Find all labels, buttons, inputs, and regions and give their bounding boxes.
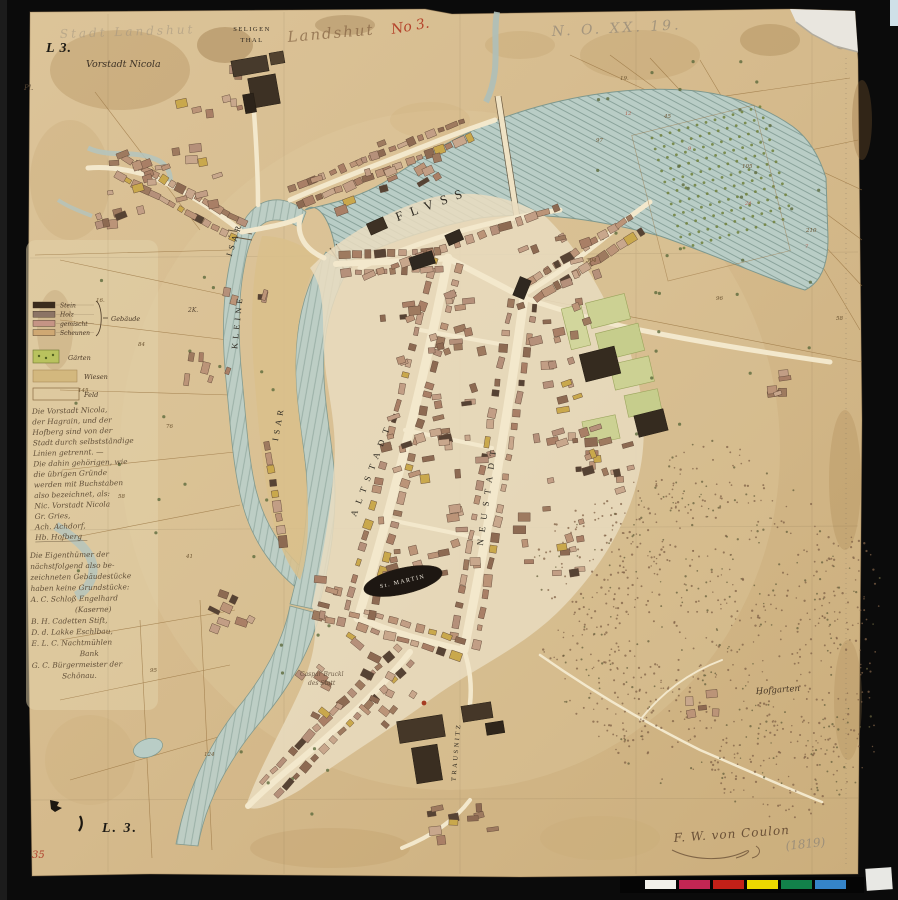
stipple-dot: [716, 644, 718, 646]
stipple-dot: [833, 642, 835, 644]
stipple-dot: [678, 688, 680, 690]
building: [447, 513, 460, 522]
orchard-tree: [672, 178, 675, 181]
orchard-tree: [711, 143, 714, 146]
stipple-dot: [681, 649, 683, 651]
stipple-dot: [623, 566, 625, 568]
stipple-dot: [822, 803, 824, 805]
stipple-dot: [831, 723, 833, 725]
stipple-dot: [747, 485, 749, 487]
stipple-dot: [692, 444, 694, 446]
stipple-dot: [605, 593, 607, 595]
stipple-dot: [626, 537, 628, 539]
stipple-dot: [849, 567, 851, 569]
stipple-dot: [872, 623, 874, 625]
orchard-tree: [699, 135, 702, 138]
building: [470, 557, 480, 565]
stipple-dot: [773, 757, 775, 759]
stipple-dot: [578, 608, 580, 610]
stipple-dot: [687, 611, 689, 613]
stipple-dot: [809, 688, 811, 690]
stipple-dot: [826, 749, 827, 750]
stipple-dot: [719, 757, 721, 759]
orchard-tree: [701, 241, 704, 244]
stipple-dot: [680, 605, 682, 607]
stipple-dot: [554, 596, 556, 598]
stipple-dot: [777, 526, 779, 528]
stipple-dot: [610, 663, 612, 665]
legend-row-label: Stein: [60, 303, 76, 310]
building: [511, 423, 518, 430]
orchard-tree: [709, 203, 712, 206]
stipple-dot: [626, 667, 628, 669]
stipple-dot: [798, 662, 800, 664]
stipple-dot: [587, 613, 589, 615]
stipple-dot: [827, 536, 829, 538]
orchard-tree: [730, 209, 733, 212]
stipple-dot: [846, 622, 848, 624]
stipple-dot: [781, 609, 783, 611]
stipple-dot: [679, 473, 680, 474]
building: [576, 467, 582, 472]
orchard-tree: [681, 175, 684, 178]
stipple-dot: [692, 676, 693, 677]
stipple-dot: [762, 484, 764, 486]
stipple-dot: [821, 605, 823, 607]
legend-swatch: [33, 311, 55, 317]
stipple-dot: [675, 507, 677, 509]
stipple-dot: [850, 729, 852, 731]
stipple-dot: [702, 446, 704, 448]
stipple-dot: [858, 733, 860, 735]
orchard-tree: [692, 244, 695, 247]
color-patch: [815, 880, 846, 889]
stipple-dot: [798, 623, 800, 625]
stipple-dot: [838, 794, 840, 796]
stipple-dot: [791, 725, 792, 726]
orchard-tree: [753, 155, 756, 158]
legend-swatch: [33, 302, 55, 308]
stipple-dot: [841, 789, 842, 790]
stipple-dot: [739, 449, 741, 451]
stipple-dot: [804, 685, 806, 687]
stipple-dot: [583, 606, 585, 608]
building: [518, 513, 530, 521]
stipple-dot: [643, 506, 645, 508]
stipple-dot: [847, 733, 849, 735]
stipple-dot: [727, 669, 729, 671]
stipple-dot: [677, 501, 679, 503]
stipple-dot: [687, 512, 689, 514]
stipple-dot: [565, 701, 567, 703]
stipple-dot: [660, 727, 662, 729]
red-parcel-number: 24: [744, 201, 751, 207]
stipple-dot: [605, 535, 607, 537]
stipple-dot: [739, 619, 741, 621]
orchard-tree: [762, 116, 765, 119]
stipple-dot: [836, 638, 838, 640]
stipple-dot: [723, 757, 725, 759]
orchard-tree: [756, 130, 759, 133]
orchard-tree: [742, 182, 745, 185]
stipple-dot: [750, 617, 752, 619]
stipple-dot: [765, 704, 767, 706]
orchard-tree: [688, 233, 691, 236]
stipple-dot: [813, 793, 815, 795]
building: [223, 287, 231, 297]
orchard-tree: [679, 236, 682, 239]
stipple-dot: [762, 529, 764, 531]
stipple-dot: [825, 739, 827, 741]
tree: [739, 60, 742, 63]
stipple-dot: [618, 548, 620, 550]
stipple-dot: [759, 723, 761, 725]
tree: [157, 498, 160, 501]
stipple-dot: [579, 620, 581, 622]
stipple-dot: [610, 616, 612, 618]
stipple-dot: [834, 611, 835, 612]
stipple-dot: [637, 577, 639, 579]
stipple-dot: [654, 513, 656, 515]
stipple-dot: [639, 720, 641, 722]
orchard-tree: [667, 192, 670, 195]
stipple-dot: [677, 741, 679, 743]
stipple-dot: [588, 675, 590, 677]
stipple-dot: [839, 611, 841, 613]
stipple-dot: [866, 668, 868, 670]
stipple-dot: [699, 666, 700, 667]
orchard-tree: [717, 129, 720, 132]
stipple-dot: [598, 660, 600, 662]
stipple-dot: [786, 595, 788, 597]
stipple-dot: [583, 629, 585, 631]
stipple-dot: [789, 792, 791, 794]
stipple-dot: [860, 609, 862, 611]
building: [490, 533, 499, 543]
stipple-dot: [763, 487, 765, 489]
legend-meadow-label: Wiesen: [84, 373, 108, 381]
building: [455, 469, 461, 478]
stipple-dot: [737, 763, 739, 765]
stipple-dot: [866, 619, 868, 621]
stipple-dot: [784, 711, 786, 713]
tree: [203, 276, 206, 279]
tree: [687, 187, 690, 190]
tree: [682, 183, 685, 186]
orchard-tree: [738, 135, 741, 138]
stipple-dot: [805, 745, 807, 747]
stipple-dot: [593, 667, 594, 668]
orchard-tree: [681, 140, 684, 143]
stipple-dot: [561, 563, 563, 565]
stipple-dot: [742, 644, 744, 646]
building: [685, 697, 693, 706]
stipple-dot: [853, 729, 855, 731]
stipple-dot: [789, 790, 790, 791]
parcel-number: 16.: [96, 298, 105, 304]
stipple-dot: [758, 617, 760, 619]
building: [355, 270, 361, 275]
handwriting-line: Bank: [79, 649, 100, 658]
stipple-dot: [616, 618, 618, 620]
orchard-tree: [755, 226, 758, 229]
stipple-dot: [837, 619, 838, 620]
stipple-dot: [820, 748, 822, 750]
building: [372, 485, 382, 494]
stipple-dot: [834, 595, 836, 597]
stipple-dot: [631, 584, 633, 586]
stipple-dot: [663, 496, 665, 498]
stipple-dot: [542, 648, 544, 650]
stipple-dot: [810, 652, 812, 654]
stipple-dot: [838, 586, 840, 588]
stipple-dot: [575, 601, 577, 603]
stipple-dot: [722, 739, 724, 741]
stipple-dot: [751, 710, 753, 712]
stipple-dot: [753, 641, 754, 642]
stipple-dot: [649, 512, 651, 514]
stipple-dot: [644, 725, 646, 727]
stipple-dot: [569, 649, 571, 651]
stipple-dot: [711, 611, 713, 613]
stipple-dot: [619, 622, 621, 624]
stipple-dot: [721, 777, 723, 779]
stipple-dot: [818, 722, 820, 724]
stipple-dot: [757, 738, 759, 740]
stipple-dot: [726, 724, 728, 726]
stipple-dot: [781, 520, 783, 522]
stipple-dot: [797, 554, 799, 556]
stipple-dot: [613, 598, 615, 600]
building: [548, 361, 557, 370]
parcel-number: 97: [596, 138, 603, 144]
stipple-dot: [617, 668, 619, 670]
stipple-dot: [707, 555, 708, 556]
stipple-dot: [760, 500, 761, 501]
stipple-dot: [629, 531, 631, 533]
stipple-dot: [684, 583, 686, 585]
orchard-tree: [705, 121, 708, 124]
stipple-dot: [774, 734, 776, 736]
building: [477, 625, 482, 631]
stipple-dot: [634, 698, 636, 700]
stipple-dot: [639, 497, 641, 499]
stipple-dot: [859, 726, 861, 728]
stipple-dot: [676, 521, 678, 523]
stipple-dot: [705, 637, 707, 639]
stipple-dot: [793, 698, 794, 699]
stipple-dot: [563, 632, 564, 633]
stipple-dot: [647, 529, 649, 531]
stipple-dot: [590, 693, 592, 695]
stipple-dot: [716, 483, 718, 485]
stipple-dot: [598, 682, 600, 684]
building: [616, 476, 624, 482]
stipple-dot: [748, 674, 750, 676]
red-sheet-number: 35: [32, 850, 45, 861]
stipple-dot: [824, 717, 826, 719]
stipple-dot: [861, 767, 862, 768]
stipple-dot: [839, 643, 841, 645]
building: [476, 803, 482, 811]
stipple-dot: [833, 543, 835, 545]
stipple-dot: [772, 720, 773, 721]
stipple-dot: [627, 739, 629, 741]
stipple-dot: [629, 650, 631, 652]
tree: [677, 165, 680, 168]
orchard-tree: [703, 181, 706, 184]
stipple-dot: [790, 731, 792, 733]
parcel-number: 95: [150, 668, 157, 674]
stipple-dot: [787, 574, 789, 576]
building: [415, 624, 425, 634]
stipple-dot: [696, 611, 698, 613]
stipple-dot: [758, 727, 760, 729]
stipple-dot: [772, 589, 774, 591]
parcel-number: 210: [805, 228, 817, 234]
orchard-tree: [721, 176, 724, 179]
stipple-dot: [620, 523, 622, 525]
tree: [741, 259, 744, 262]
stipple-dot: [795, 790, 797, 792]
stipple-dot: [829, 738, 831, 740]
stipple-dot: [757, 743, 759, 745]
stipple-dot: [590, 617, 592, 619]
stipple-dot: [693, 768, 695, 770]
tree: [327, 624, 330, 627]
stipple-dot: [651, 711, 653, 713]
tree: [317, 634, 320, 637]
stipple-dot: [756, 524, 758, 526]
stipple-dot: [834, 743, 836, 745]
stipple-dot: [644, 673, 646, 675]
stipple-dot: [823, 727, 825, 729]
legend-garden-label: Gärten: [68, 354, 91, 362]
orchard-tree: [651, 137, 654, 140]
stipple-dot: [603, 502, 605, 504]
stipple-dot: [873, 724, 875, 726]
orchard-tree: [765, 127, 768, 130]
stipple-dot: [766, 715, 768, 717]
stipple-dot: [729, 451, 731, 453]
stipple-dot: [716, 628, 718, 630]
stipple-dot: [830, 637, 832, 639]
orchard-tree: [733, 184, 736, 187]
stipple-dot: [822, 719, 824, 721]
stipple-dot: [641, 500, 642, 501]
stipple-dot: [833, 726, 835, 728]
parcel-number: 304: [586, 258, 597, 264]
stipple-dot: [606, 500, 608, 502]
building: [523, 347, 531, 357]
tree: [606, 97, 609, 100]
stipple-dot: [611, 551, 613, 553]
orchard-tree: [685, 222, 688, 225]
stipple-dot: [724, 776, 726, 778]
building: [319, 611, 325, 620]
stipple-dot: [669, 459, 670, 460]
stipple-dot: [601, 698, 603, 700]
orchard-tree: [773, 221, 776, 224]
orchard-tree: [726, 127, 729, 130]
tree: [240, 750, 243, 753]
stipple-dot: [624, 654, 626, 656]
stipple-dot: [628, 745, 630, 747]
stipple-dot: [804, 579, 806, 581]
tree: [310, 812, 313, 815]
building: [374, 477, 383, 485]
stipple-dot: [752, 796, 754, 798]
stipple-dot: [805, 644, 807, 646]
building: [199, 352, 204, 361]
stipple-dot: [609, 564, 611, 566]
stipple-dot: [684, 506, 686, 508]
stipple-dot: [731, 772, 733, 774]
orchard-tree: [732, 149, 735, 152]
stipple-dot: [654, 573, 656, 575]
stipple-dot: [825, 570, 826, 571]
orchard-tree: [715, 225, 718, 228]
stipple-dot: [622, 703, 624, 705]
stipple-dot: [819, 764, 821, 766]
building: [502, 330, 510, 336]
stipple-dot: [735, 775, 737, 777]
label-seligenthal-2: THAL: [240, 37, 263, 44]
stipple-dot: [758, 542, 760, 544]
stipple-dot: [717, 761, 719, 763]
stipple-dot: [599, 688, 601, 690]
stipple-dot: [763, 703, 765, 705]
stipple-dot: [655, 699, 657, 701]
stipple-dot: [852, 556, 854, 558]
stipple-dot: [698, 600, 700, 602]
orchard-tree: [771, 149, 774, 152]
stipple-dot: [847, 601, 849, 603]
stipple-dot: [575, 713, 577, 715]
stipple-dot: [596, 592, 597, 593]
orchard-tree: [735, 124, 738, 127]
building: [394, 549, 400, 554]
stipple-dot: [638, 504, 640, 506]
stipple-dot: [702, 679, 704, 681]
stipple-dot: [705, 711, 707, 713]
stipple-dot: [785, 625, 787, 627]
handwriting-line: haben keine Grundstücke:: [30, 582, 129, 593]
stipple-dot: [712, 459, 714, 461]
stipple-dot: [606, 730, 608, 732]
stipple-dot: [720, 608, 721, 609]
stipple-dot: [609, 654, 611, 656]
stipple-dot: [741, 719, 743, 721]
building: [471, 514, 477, 520]
stipple-dot: [652, 710, 654, 712]
stipple-dot: [697, 588, 699, 590]
stipple-dot: [874, 651, 876, 653]
building: [364, 610, 370, 615]
stipple-dot: [824, 704, 826, 706]
stipple-dot: [555, 566, 556, 567]
stipple-dot: [685, 558, 687, 560]
orchard-tree: [760, 212, 763, 215]
stipple-dot: [612, 529, 614, 531]
building: [419, 406, 428, 416]
stipple-dot: [818, 549, 820, 551]
stipple-dot: [733, 721, 735, 723]
tree: [162, 415, 165, 418]
stipple-dot: [623, 735, 625, 737]
building: [387, 249, 395, 256]
stipple-dot: [727, 501, 729, 503]
